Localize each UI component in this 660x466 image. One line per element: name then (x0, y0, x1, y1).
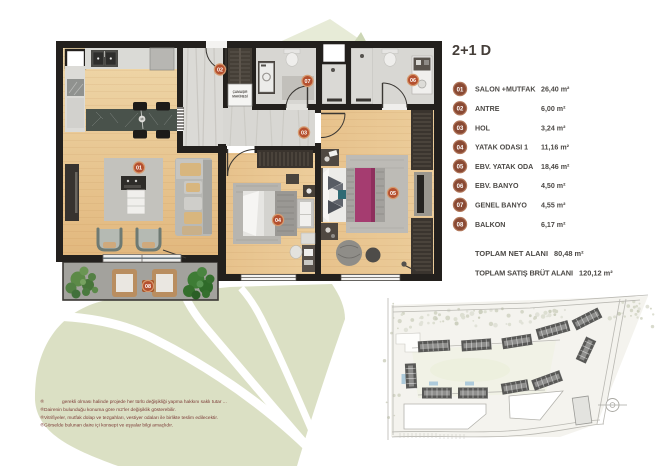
svg-text:®: ® (41, 398, 45, 405)
svg-text:BALKON: BALKON (475, 221, 505, 229)
svg-text:TOPLAM SATIŞ BRÜT ALANI: TOPLAM SATIŞ BRÜT ALANI (475, 269, 573, 278)
svg-text:®Görselde bulunan daire içi ko: ®Görselde bulunan daire içi konsept ve e… (41, 422, 174, 429)
svg-text:26,40 m²: 26,40 m² (541, 86, 570, 94)
svg-text:®Vitrifiyeler, mutfak dolap ve: ®Vitrifiyeler, mutfak dolap ve tezgahlar… (41, 414, 219, 421)
svg-text:11,16 m²: 11,16 m² (541, 144, 570, 152)
svg-text:05: 05 (390, 191, 396, 197)
svg-text:EBV. BANYO: EBV. BANYO (475, 182, 519, 190)
svg-text:07: 07 (457, 203, 464, 209)
svg-text:6,17 m²: 6,17 m² (541, 221, 566, 229)
svg-text:07: 07 (305, 79, 311, 85)
svg-text:2+1 D: 2+1 D (452, 43, 491, 59)
svg-text:gerekli olması halinde projede: gerekli olması halinde projede her türlü… (62, 399, 227, 405)
svg-text:01: 01 (136, 166, 142, 172)
svg-text:02: 02 (457, 107, 464, 113)
svg-text:EBV. YATAK ODA: EBV. YATAK ODA (475, 163, 533, 171)
svg-text:SALON +MUTFAK: SALON +MUTFAK (475, 86, 536, 94)
svg-text:3,24 m²: 3,24 m² (541, 124, 566, 132)
svg-text:®Dairenin bulunduğu konuma gör: ®Dairenin bulunduğu konuma göre m2'ler d… (41, 406, 176, 413)
svg-text:08: 08 (457, 223, 464, 229)
svg-text:HOL: HOL (475, 124, 491, 132)
svg-text:ANTRE: ANTRE (475, 105, 500, 113)
svg-text:06: 06 (410, 78, 416, 84)
svg-text:GENEL BANYO: GENEL BANYO (475, 202, 527, 210)
svg-text:08: 08 (145, 284, 151, 290)
svg-text:03: 03 (457, 126, 464, 132)
svg-text:02: 02 (217, 68, 223, 74)
svg-text:120,12 m²: 120,12 m² (579, 269, 613, 278)
svg-text:4,55 m²: 4,55 m² (541, 202, 566, 210)
svg-text:ÇAMAŞIR: ÇAMAŞIR (233, 90, 249, 94)
svg-text:01: 01 (457, 87, 464, 93)
svg-text:04: 04 (457, 145, 464, 151)
svg-text:06: 06 (457, 184, 464, 190)
svg-text:05: 05 (457, 165, 464, 171)
svg-text:YATAK ODASI 1: YATAK ODASI 1 (475, 144, 528, 152)
svg-text:18,46 m²: 18,46 m² (541, 163, 570, 171)
svg-text:4,50 m²: 4,50 m² (541, 182, 566, 190)
svg-text:80,48 m²: 80,48 m² (554, 249, 584, 258)
svg-text:6,00 m²: 6,00 m² (541, 105, 566, 113)
svg-text:03: 03 (301, 131, 307, 137)
svg-text:04: 04 (275, 218, 281, 224)
svg-text:MAKİNESİ: MAKİNESİ (232, 95, 248, 99)
svg-text:TOPLAM NET ALANI: TOPLAM NET ALANI (475, 249, 548, 258)
